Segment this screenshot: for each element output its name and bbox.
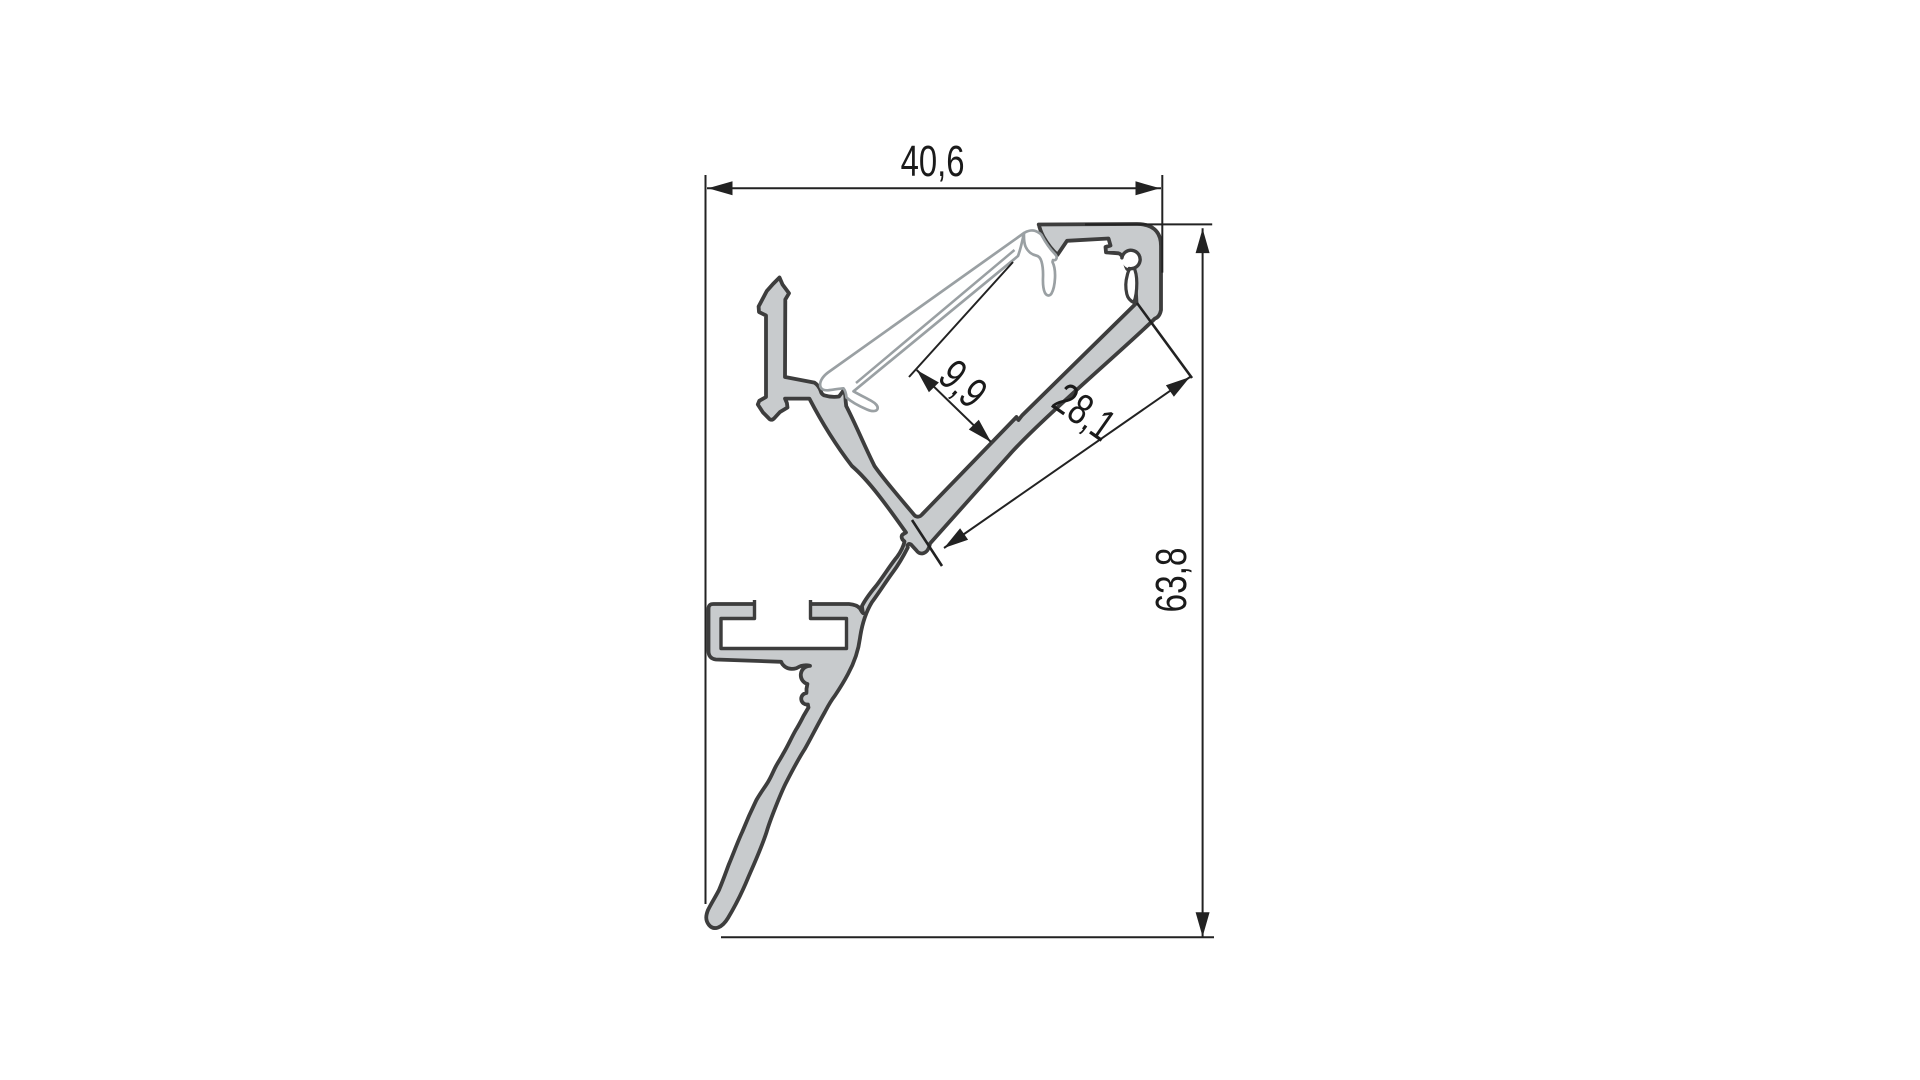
svg-text:40,6: 40,6 xyxy=(901,137,965,186)
svg-text:63,8: 63,8 xyxy=(1147,548,1196,613)
